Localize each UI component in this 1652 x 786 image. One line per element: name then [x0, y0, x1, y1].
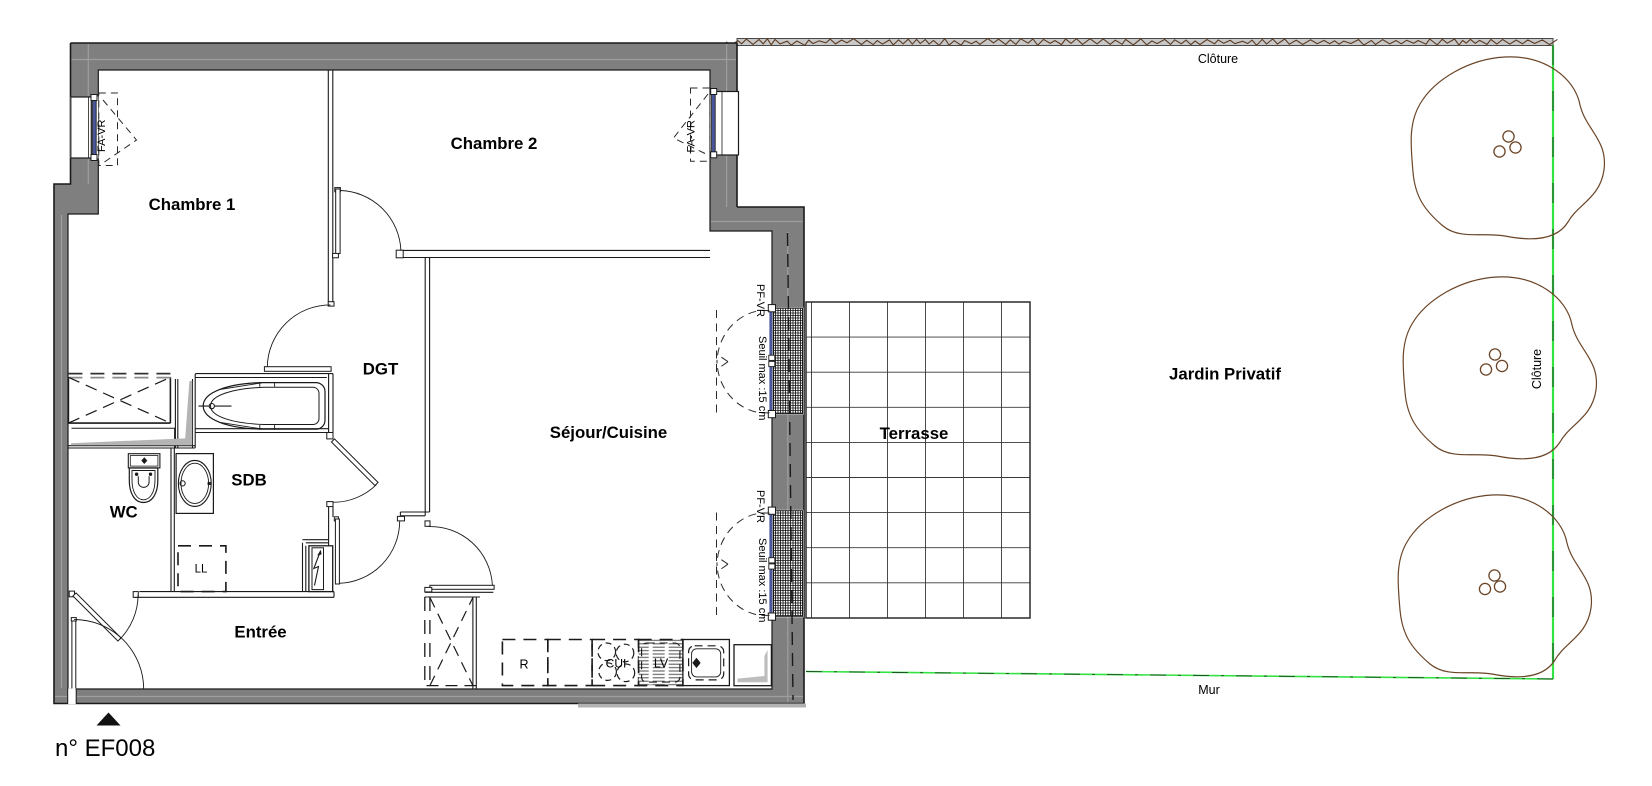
svg-text:PF-VR: PF-VR: [754, 284, 766, 317]
svg-text:Chambre 2: Chambre 2: [451, 134, 538, 153]
svg-text:LL: LL: [195, 564, 208, 576]
svg-text:Entrée: Entrée: [234, 623, 286, 642]
svg-text:LV: LV: [654, 657, 669, 671]
svg-text:SDB: SDB: [231, 471, 266, 490]
svg-text:R: R: [519, 658, 528, 672]
svg-text:CUI: CUI: [606, 657, 627, 671]
svg-text:Terrasse: Terrasse: [880, 424, 949, 443]
svg-text:FA-VR: FA-VR: [96, 120, 108, 152]
svg-text:Mur: Mur: [1198, 683, 1220, 697]
svg-text:Chambre 1: Chambre 1: [149, 195, 236, 214]
svg-text:DGT: DGT: [363, 360, 399, 379]
svg-text:Seuil max :15 cm: Seuil max :15 cm: [756, 336, 768, 420]
svg-text:Seuil max :15 cm: Seuil max :15 cm: [756, 538, 768, 622]
svg-text:Clôture: Clôture: [1530, 349, 1544, 389]
svg-text:WC: WC: [110, 503, 138, 522]
svg-text:Jardin Privatif: Jardin Privatif: [1169, 365, 1281, 384]
svg-text:FA-VR: FA-VR: [686, 120, 698, 152]
svg-text:Séjour/Cuisine: Séjour/Cuisine: [550, 423, 668, 442]
svg-text:n° EF008: n° EF008: [55, 735, 155, 762]
svg-text:Clôture: Clôture: [1198, 52, 1238, 66]
svg-text:PF-VR: PF-VR: [754, 490, 766, 523]
